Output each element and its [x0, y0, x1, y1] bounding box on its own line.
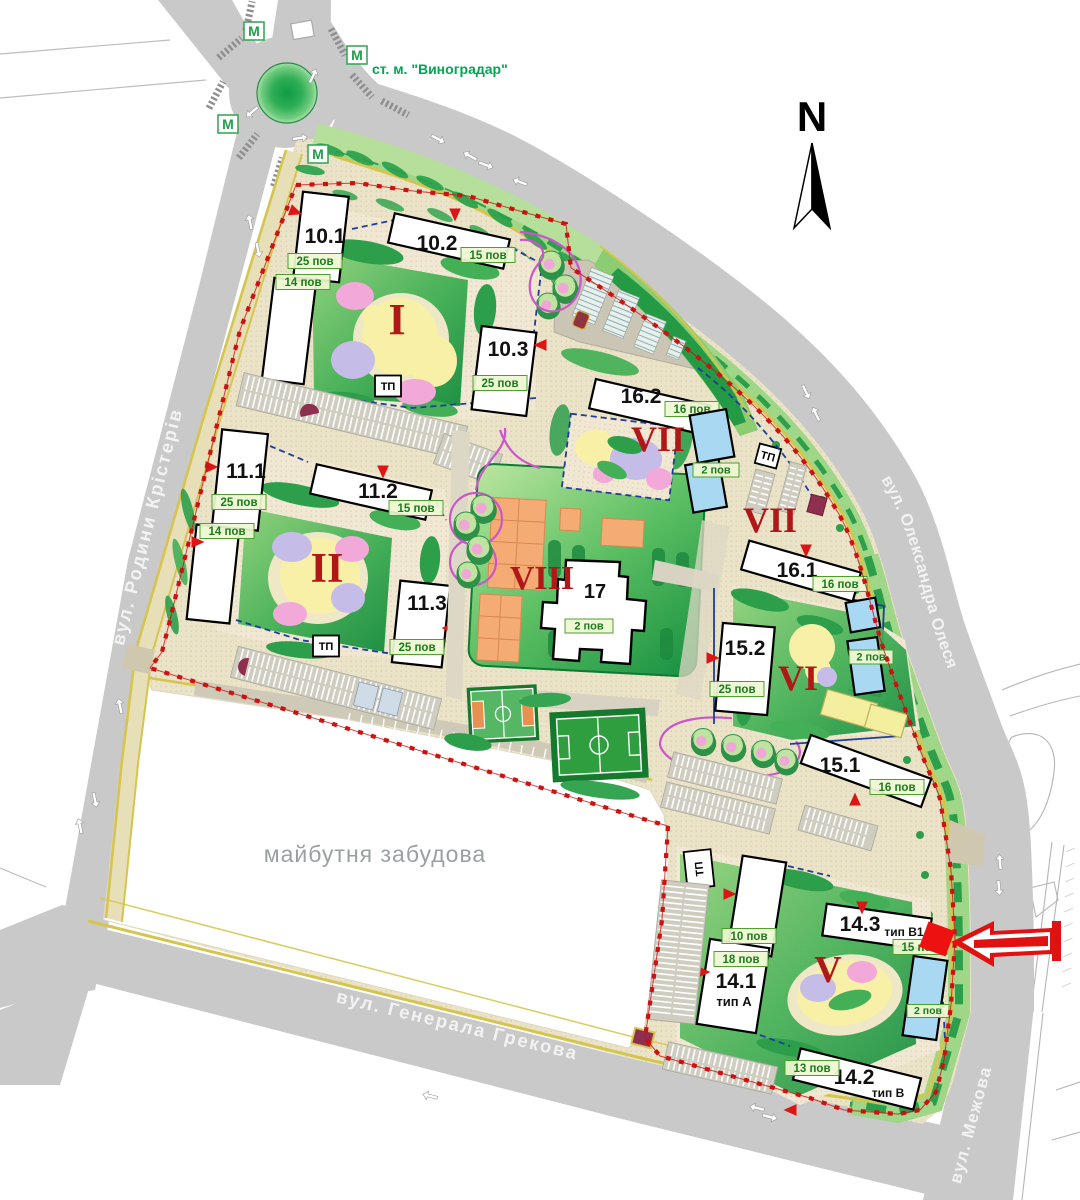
svg-text:2 пов: 2 пов	[856, 651, 886, 663]
svg-text:11.2: 11.2	[358, 480, 398, 503]
svg-text:10.1: 10.1	[305, 225, 346, 248]
svg-text:16.2: 16.2	[621, 385, 662, 408]
svg-text:M: M	[312, 146, 324, 162]
svg-text:17: 17	[584, 581, 606, 603]
svg-text:ст. м. "Виноградар": ст. м. "Виноградар"	[372, 61, 508, 77]
svg-text:VIII: VIII	[510, 560, 574, 597]
svg-text:14.2: 14.2	[834, 1066, 875, 1089]
svg-text:16.1: 16.1	[777, 559, 818, 582]
svg-text:M: M	[351, 47, 363, 63]
svg-text:ТП: ТП	[381, 381, 396, 393]
svg-text:14 пов: 14 пов	[284, 277, 321, 289]
svg-text:ТП: ТП	[693, 861, 706, 877]
svg-text:13 пов: 13 пов	[793, 1063, 830, 1075]
svg-text:16 пов: 16 пов	[821, 579, 858, 591]
svg-text:14.3: 14.3	[840, 913, 881, 936]
svg-text:15 пов: 15 пов	[397, 503, 434, 515]
svg-text:VII: VII	[743, 500, 797, 540]
svg-text:N: N	[797, 93, 827, 140]
svg-text:14.1: 14.1	[716, 970, 757, 993]
svg-text:2 пов: 2 пов	[914, 1005, 943, 1017]
svg-text:M: M	[222, 116, 234, 132]
svg-text:10.3: 10.3	[488, 338, 529, 361]
svg-text:I: I	[388, 295, 405, 344]
svg-text:11.1: 11.1	[226, 460, 266, 483]
svg-text:18 пов: 18 пов	[722, 954, 759, 966]
svg-text:тип А: тип А	[716, 994, 752, 1009]
svg-text:14 пов: 14 пов	[208, 526, 245, 538]
svg-text:ТП: ТП	[319, 641, 334, 653]
svg-text:тип В1: тип В1	[884, 925, 924, 939]
svg-text:10 пов: 10 пов	[730, 931, 767, 943]
svg-text:2 пов: 2 пов	[701, 464, 731, 476]
svg-text:тип В: тип В	[872, 1086, 905, 1100]
svg-text:25 пов: 25 пов	[398, 642, 435, 654]
svg-text:M: M	[248, 23, 260, 39]
svg-text:25 пов: 25 пов	[481, 378, 518, 390]
svg-text:25 пов: 25 пов	[220, 497, 257, 509]
svg-text:16 пов: 16 пов	[878, 782, 915, 794]
svg-text:15 пов: 15 пов	[469, 250, 506, 262]
svg-text:VII: VII	[631, 419, 685, 459]
svg-text:25 пов: 25 пов	[296, 256, 333, 268]
svg-text:10.2: 10.2	[417, 232, 458, 255]
svg-text:2 пов: 2 пов	[574, 620, 604, 632]
svg-text:VI: VI	[778, 658, 818, 698]
svg-text:11.3: 11.3	[407, 592, 447, 615]
svg-text:25 пов: 25 пов	[718, 684, 755, 696]
svg-text:II: II	[311, 546, 344, 592]
svg-text:15.2: 15.2	[725, 637, 766, 660]
svg-text:V: V	[814, 949, 842, 991]
svg-text:майбутня забудова: майбутня забудова	[264, 841, 486, 867]
svg-text:15.1: 15.1	[820, 754, 861, 777]
